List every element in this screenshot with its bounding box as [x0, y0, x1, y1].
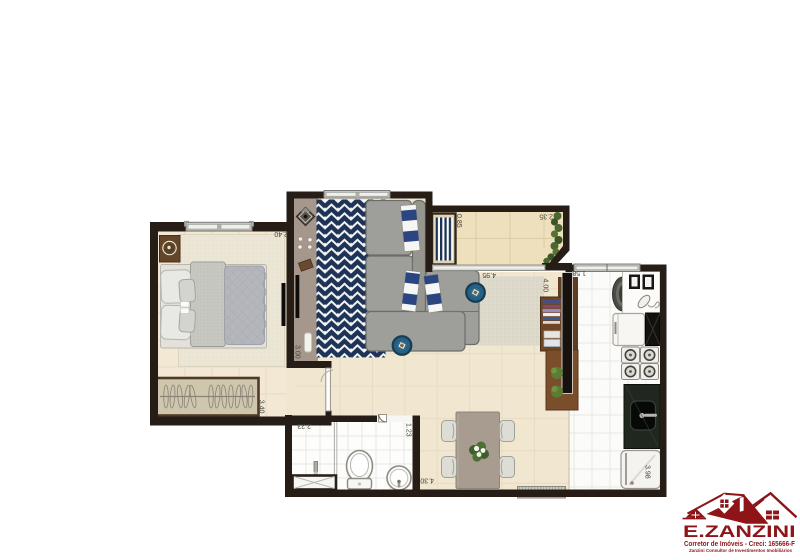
svg-text:4.00: 4.00	[542, 279, 549, 293]
svg-text:3.00: 3.00	[294, 345, 301, 359]
svg-text:3.98: 3.98	[644, 465, 651, 479]
svg-text:4.95: 4.95	[482, 271, 496, 278]
svg-text:0.85: 0.85	[455, 214, 462, 228]
svg-text:4.30: 4.30	[420, 476, 434, 483]
svg-text:3.40: 3.40	[258, 400, 265, 414]
svg-text:2.40: 2.40	[274, 230, 288, 237]
svg-text:1.23: 1.23	[405, 423, 412, 437]
svg-text:Corretor de Imóveis - Creci: 1: Corretor de Imóveis - Creci: 165666-F	[684, 541, 796, 548]
svg-text:1.58: 1.58	[572, 269, 586, 276]
svg-text:E.ZANZINI: E.ZANZINI	[683, 523, 796, 541]
svg-text:Zanzini Consultor de Investime: Zanzini Consultor de Investimentos Imobi…	[689, 548, 793, 553]
svg-text:2.35: 2.35	[539, 213, 553, 220]
svg-text:2.23: 2.23	[297, 422, 311, 429]
